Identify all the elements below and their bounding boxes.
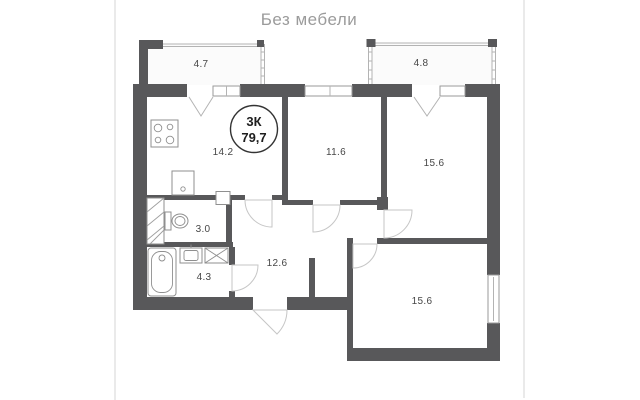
washing-machine-icon [205, 248, 228, 263]
badge-room-count: 3К [246, 114, 261, 129]
bathtub-icon [148, 248, 176, 296]
room-label-room-bottom-right: 15.6 [412, 296, 433, 307]
bathroom-door-swing [232, 265, 258, 291]
toilet-door-leaf [216, 192, 230, 205]
room-label-balcony-right: 4.8 [414, 58, 429, 69]
room-label-toilet: 3.0 [196, 224, 211, 235]
duct-shaft [147, 198, 164, 244]
kitchen-door-swing [245, 200, 272, 227]
room-label-hallway: 12.6 [267, 258, 288, 269]
floor-plan-canvas: Без мебели [0, 0, 640, 400]
badge-total-area: 79,7 [241, 130, 266, 145]
kitchen-sink-icon [172, 171, 194, 195]
kitchen-balcony-door [189, 97, 213, 116]
view-mode-title: Без мебели [261, 10, 358, 29]
room-top-middle-door-swing [313, 205, 340, 232]
room-bottom-right-door-swing [353, 244, 377, 268]
room-label-room-top-right: 15.6 [424, 158, 445, 169]
washbasin-icon [180, 245, 202, 264]
apartment-badge: 3К 79,7 [231, 106, 278, 153]
toilet-icon [165, 212, 188, 230]
floor-plan-view: Без мебели [0, 0, 640, 400]
room-top-right-balcony-door [414, 97, 440, 116]
stove-icon [151, 120, 178, 147]
room-top-right-window [440, 86, 465, 96]
room-label-balcony-left: 4.7 [194, 59, 209, 70]
room-label-bathroom: 4.3 [197, 272, 212, 283]
room-top-right-door-swing [384, 210, 412, 238]
room-label-room-top-middle: 11.6 [326, 147, 346, 158]
room-label-kitchen: 14.2 [213, 147, 234, 158]
room-top-middle-window [305, 86, 352, 96]
entry-door-swing [253, 310, 287, 334]
balcony-right [367, 39, 498, 85]
